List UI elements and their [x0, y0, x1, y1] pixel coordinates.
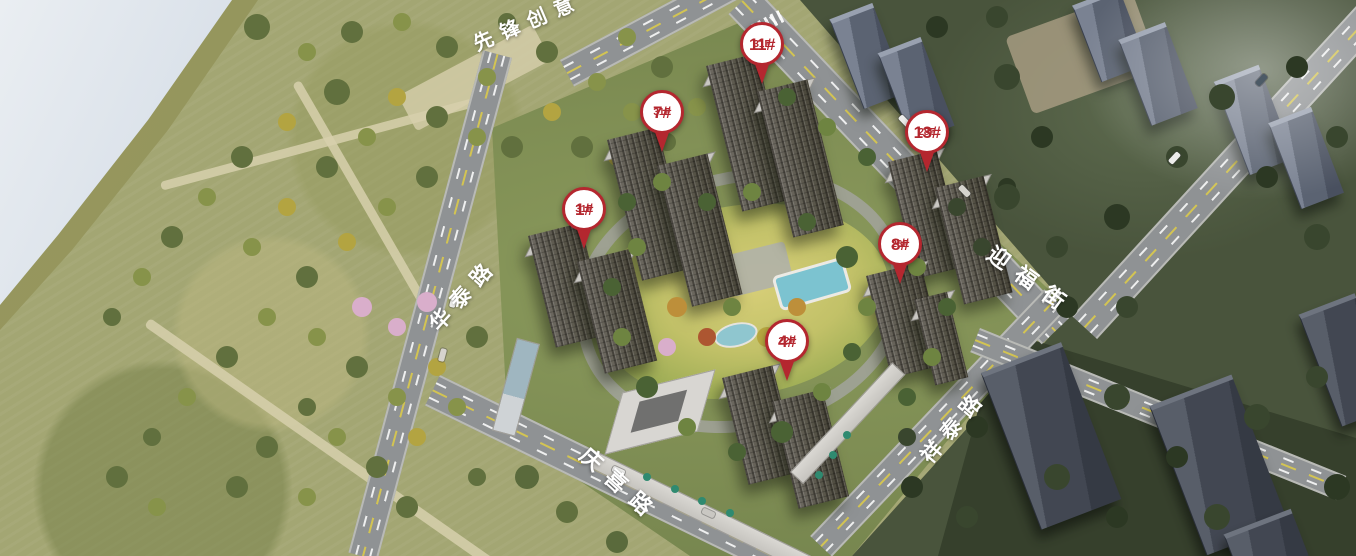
building-marker-4[interactable]: 4# 22F: [765, 319, 809, 383]
building-marker-13[interactable]: 13# 28F: [905, 110, 949, 174]
building-marker-1[interactable]: 1# 31F: [562, 187, 606, 251]
pin-head: 13# 28F: [905, 110, 949, 154]
building-marker-7[interactable]: 7# 31F: [640, 90, 684, 154]
building-floors: 31F: [753, 39, 770, 50]
pin-head: 8# 26F: [878, 222, 922, 266]
pin-head: 4# 22F: [765, 319, 809, 363]
building-floors: 31F: [653, 107, 670, 118]
pin-head: 7# 31F: [640, 90, 684, 134]
building-marker-11[interactable]: 11# 31F: [740, 22, 784, 86]
building-marker-8[interactable]: 8# 26F: [878, 222, 922, 286]
building-floors: 28F: [918, 127, 935, 138]
building-floors: 22F: [778, 336, 795, 347]
pin-head: 11# 31F: [740, 22, 784, 66]
building-floors: 26F: [891, 239, 908, 250]
building-floors: 31F: [575, 204, 592, 215]
pin-head: 1# 31F: [562, 187, 606, 231]
context-trees: [0, 0, 14, 14]
aerial-site-rendering: 先锋创意 华泰路 迎福街 祥泰路 庆喜路 11# 31F 7# 31F 13# …: [0, 0, 1356, 556]
